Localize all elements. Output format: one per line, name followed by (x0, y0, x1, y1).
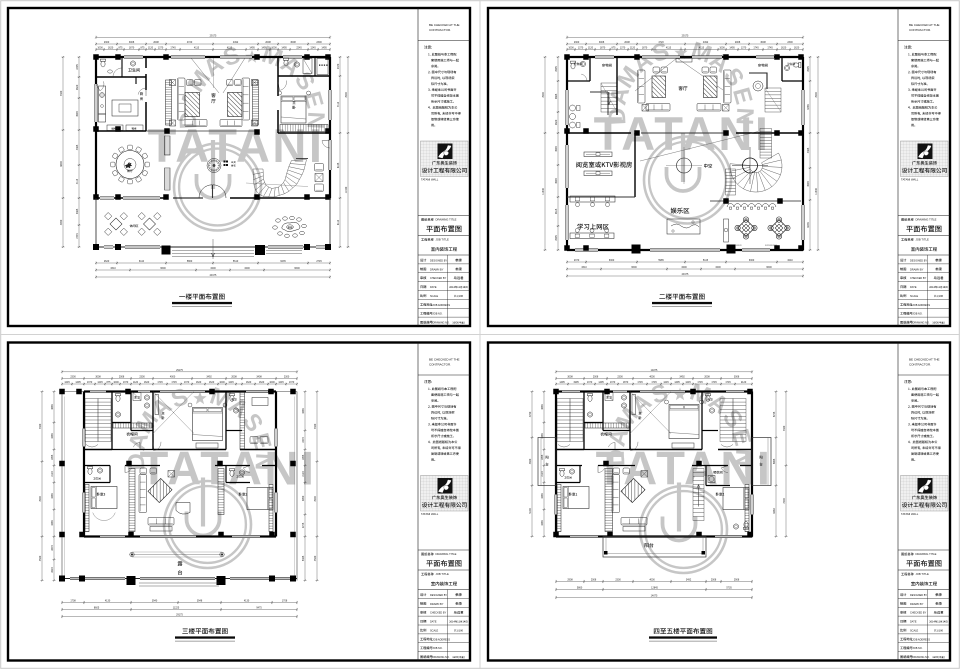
svg-text:1620: 1620 (196, 381, 202, 384)
svg-text:2370: 2370 (337, 63, 340, 69)
svg-text:DATE: DATE (430, 621, 437, 624)
svg-text:7600: 7600 (39, 496, 42, 502)
svg-text:DRAWN BY: DRAWN BY (430, 268, 444, 271)
svg-text:7600: 7600 (815, 92, 818, 98)
svg-text:JOB ADDRESS: JOB ADDRESS (913, 304, 931, 307)
svg-text:1620: 1620 (259, 381, 265, 384)
svg-text:6360: 6360 (609, 259, 615, 262)
svg-text:1495: 1495 (281, 47, 287, 50)
svg-text:3400: 3400 (210, 267, 216, 270)
svg-text:6235: 6235 (280, 260, 286, 263)
svg-text:7300: 7300 (39, 423, 42, 429)
svg-text:1745: 1745 (157, 381, 163, 384)
svg-text:5735: 5735 (773, 411, 776, 417)
svg-text:1995: 1995 (302, 454, 305, 460)
svg-text:DRAWING NO.: DRAWING NO. (913, 322, 930, 325)
svg-text:1000: 1000 (568, 47, 574, 50)
svg-text:14075: 14075 (651, 369, 658, 372)
svg-text:1995: 1995 (573, 381, 579, 384)
svg-text:DESIGNED BY: DESIGNED BY (430, 259, 447, 262)
svg-text:CONTRACTOR.: CONTRACTOR. (909, 28, 931, 32)
svg-text:6600: 6600 (631, 266, 637, 269)
svg-text:SCALE: SCALE (910, 629, 919, 632)
svg-text:1370: 1370 (184, 381, 190, 384)
svg-text:1245: 1245 (310, 47, 316, 50)
svg-text:1745: 1745 (697, 381, 703, 384)
svg-text:2300: 2300 (316, 41, 322, 44)
svg-text:2370: 2370 (302, 437, 305, 443)
svg-text:6360: 6360 (773, 508, 776, 514)
svg-text:DESIGNED BY: DESIGNED BY (910, 594, 927, 597)
svg-text:4720: 4720 (658, 41, 664, 44)
svg-text:2008: 2008 (711, 579, 717, 582)
svg-text:DRAWING NO.: DRAWING NO. (433, 656, 450, 659)
svg-text:3240: 3240 (787, 259, 793, 262)
svg-text:4130: 4130 (244, 600, 250, 603)
svg-text:5985: 5985 (773, 458, 776, 464)
svg-text:5860: 5860 (187, 260, 193, 263)
svg-text:CHECKED BY: CHECKED BY (430, 277, 447, 280)
svg-text:4365: 4365 (76, 144, 79, 150)
svg-text:3365: 3365 (541, 520, 544, 526)
svg-text:5100: 5100 (529, 508, 532, 514)
svg-text:4700: 4700 (529, 411, 532, 417)
svg-text:1370: 1370 (587, 381, 593, 384)
svg-text:1370: 1370 (158, 47, 164, 50)
svg-text:3365: 3365 (51, 520, 54, 526)
svg-text:2370: 2370 (574, 259, 580, 262)
svg-text:1370: 1370 (578, 47, 584, 50)
svg-text:3365: 3365 (541, 493, 544, 499)
svg-text:1495: 1495 (598, 381, 604, 384)
svg-text:5860: 5860 (577, 587, 583, 590)
svg-text:3365: 3365 (51, 493, 54, 499)
svg-text:2995: 2995 (807, 66, 810, 72)
svg-text:1745: 1745 (170, 47, 176, 50)
svg-text:CONTRACTOR.: CONTRACTOR. (429, 363, 451, 367)
svg-text:2120: 2120 (541, 471, 544, 477)
svg-text:DRAWING TITLE: DRAWING TITLE (916, 218, 937, 222)
svg-text:7600: 7600 (542, 92, 545, 98)
svg-text:CHECKED BY: CHECKED BY (910, 612, 927, 615)
svg-text:2745: 2745 (76, 233, 79, 239)
svg-text:2300: 2300 (615, 579, 621, 582)
svg-text:2300: 2300 (574, 41, 580, 44)
svg-text:JOB NO.: JOB NO. (433, 647, 443, 650)
svg-text:3865: 3865 (541, 404, 544, 410)
svg-text:4500: 4500 (314, 555, 317, 561)
svg-text:1245: 1245 (64, 381, 70, 384)
svg-text:4492: 4492 (703, 41, 709, 44)
svg-text:3310: 3310 (581, 266, 587, 269)
svg-text:3492: 3492 (679, 376, 685, 379)
svg-text:4115: 4115 (194, 47, 200, 50)
svg-text:1495: 1495 (674, 381, 680, 384)
svg-text:CHECKED BY: CHECKED BY (910, 277, 927, 280)
svg-text:5985: 5985 (658, 259, 664, 262)
svg-text:1745: 1745 (651, 381, 657, 384)
svg-text:JOB ADDRESS: JOB ADDRESS (433, 638, 451, 641)
svg-text:CONTRACTOR.: CONTRACTOR. (909, 363, 931, 367)
svg-text:6360: 6360 (749, 259, 755, 262)
svg-text:5610: 5610 (233, 260, 239, 263)
svg-text:7300: 7300 (60, 90, 63, 96)
svg-text:1495: 1495 (559, 381, 565, 384)
svg-text:1620: 1620 (246, 381, 252, 384)
svg-text:2300: 2300 (787, 41, 793, 44)
svg-text:11225: 11225 (173, 607, 180, 610)
svg-text:2300: 2300 (104, 41, 110, 44)
svg-text:DRAWING NO.: DRAWING NO. (433, 322, 450, 325)
svg-text:1745: 1745 (753, 47, 759, 50)
svg-text:1995: 1995 (51, 454, 54, 460)
svg-text:1870: 1870 (623, 381, 629, 384)
svg-text:11500: 11500 (542, 188, 545, 195)
svg-text:1000: 1000 (113, 381, 119, 384)
svg-text:1245: 1245 (97, 381, 103, 384)
svg-text:6110: 6110 (139, 260, 145, 263)
svg-text:3408: 3408 (256, 376, 262, 379)
svg-text:2008: 2008 (265, 41, 271, 44)
svg-text:TATAMI WALL: TATAMI WALL (421, 512, 439, 516)
svg-text:1245: 1245 (228, 381, 234, 384)
svg-text:2245: 2245 (296, 47, 302, 50)
svg-text:1870: 1870 (600, 47, 606, 50)
svg-text:2908: 2908 (734, 579, 740, 582)
svg-text:2120: 2120 (51, 471, 54, 477)
svg-text:1000: 1000 (219, 381, 225, 384)
svg-text:6600: 6600 (294, 267, 300, 270)
svg-text:6110: 6110 (337, 219, 340, 225)
svg-text:875: 875 (107, 381, 112, 384)
svg-text:DRAWN BY: DRAWN BY (910, 603, 924, 606)
svg-text:TATAMI WALL: TATAMI WALL (901, 512, 919, 516)
svg-text:29175: 29175 (176, 369, 183, 372)
svg-text:2995: 2995 (555, 235, 558, 241)
svg-text:7110: 7110 (337, 101, 340, 107)
svg-text:1370: 1370 (610, 381, 616, 384)
svg-text:5485: 5485 (302, 555, 305, 561)
svg-text:TATAMI WALL: TATAMI WALL (421, 178, 439, 182)
svg-text:3310: 3310 (110, 267, 116, 270)
svg-text:1495: 1495 (261, 47, 267, 50)
svg-text:1745: 1745 (767, 47, 773, 50)
svg-text:2300: 2300 (284, 376, 290, 379)
svg-text:SCALE: SCALE (910, 295, 919, 298)
svg-text:1620: 1620 (209, 381, 215, 384)
svg-text:4115: 4115 (76, 178, 79, 184)
svg-text:3008: 3008 (567, 376, 573, 379)
svg-text:29175: 29175 (176, 614, 183, 617)
svg-text:4115: 4115 (227, 47, 233, 50)
svg-text:2620: 2620 (555, 119, 558, 125)
svg-text:JOB NO.: JOB NO. (433, 313, 443, 316)
svg-text:7300: 7300 (783, 425, 786, 431)
svg-text:1370: 1370 (620, 47, 626, 50)
svg-text:1000: 1000 (719, 47, 725, 50)
svg-text:DRAWING TITLE: DRAWING TITLE (916, 552, 937, 556)
svg-text:2120: 2120 (302, 471, 305, 477)
svg-text:3865: 3865 (555, 93, 558, 99)
svg-text:4000: 4000 (649, 376, 655, 379)
svg-text:1370: 1370 (87, 381, 93, 384)
svg-text:JOB ADDRESS: JOB ADDRESS (433, 304, 451, 307)
svg-text:1995: 1995 (541, 454, 544, 460)
svg-text:7300: 7300 (314, 423, 317, 429)
svg-text:4800: 4800 (529, 458, 532, 464)
svg-text:12845: 12845 (651, 587, 658, 590)
svg-text:2008: 2008 (591, 579, 597, 582)
svg-text:3008: 3008 (290, 41, 296, 44)
svg-text:JOB TITLE: JOB TITLE (916, 238, 929, 242)
svg-text:9475: 9475 (256, 607, 262, 610)
svg-text:1000: 1000 (269, 381, 275, 384)
svg-text:DRAWING NO.: DRAWING NO. (913, 656, 930, 659)
svg-text:2745: 2745 (302, 522, 305, 528)
svg-text:11500: 11500 (815, 188, 818, 195)
svg-text:1000: 1000 (271, 47, 277, 50)
svg-text:1495: 1495 (249, 47, 255, 50)
svg-text:2908: 2908 (567, 579, 573, 582)
svg-text:11400: 11400 (345, 186, 348, 193)
svg-text:4365: 4365 (807, 147, 810, 153)
svg-text:DRAWING TITLE: DRAWING TITLE (436, 218, 457, 222)
svg-text:1745: 1745 (171, 381, 177, 384)
svg-text:5735: 5735 (726, 587, 732, 590)
svg-text:4500: 4500 (39, 555, 42, 561)
svg-text:8605: 8605 (94, 607, 100, 610)
svg-text:2300: 2300 (70, 376, 76, 379)
svg-text:1370: 1370 (123, 381, 129, 384)
svg-text:3990: 3990 (807, 181, 810, 187)
svg-text:2008: 2008 (704, 376, 710, 379)
svg-text:DESIGNED BY: DESIGNED BY (430, 594, 447, 597)
svg-text:1495: 1495 (75, 381, 81, 384)
svg-text:6600: 6600 (766, 266, 772, 269)
svg-text:3400: 3400 (681, 266, 687, 269)
svg-text:DATE: DATE (910, 286, 917, 289)
svg-text:3990: 3990 (76, 111, 79, 117)
svg-text:BE CHECKED AT THE: BE CHECKED AT THE (429, 23, 460, 27)
svg-text:1620: 1620 (794, 47, 800, 50)
svg-text:3865: 3865 (51, 404, 54, 410)
svg-text:3008: 3008 (760, 41, 766, 44)
svg-text:1000: 1000 (97, 47, 103, 50)
svg-text:4000: 4000 (649, 579, 655, 582)
svg-text:BE CHECKED AT THE: BE CHECKED AT THE (909, 23, 940, 27)
svg-text:1620: 1620 (781, 47, 787, 50)
svg-text:6235: 6235 (807, 222, 810, 228)
svg-text:3990: 3990 (302, 495, 305, 501)
svg-text:2745: 2745 (316, 260, 322, 263)
svg-text:4115: 4115 (699, 47, 705, 50)
svg-text:1708: 1708 (70, 600, 76, 603)
svg-text:3615: 3615 (555, 208, 558, 214)
svg-text:1620: 1620 (108, 47, 114, 50)
svg-text:4900: 4900 (60, 219, 63, 225)
svg-text:3008: 3008 (95, 376, 101, 379)
svg-text:8105: 8105 (337, 162, 340, 168)
svg-text:6485: 6485 (807, 104, 810, 110)
svg-text:1745: 1745 (725, 381, 731, 384)
svg-text:3008: 3008 (599, 41, 605, 44)
svg-text:2008: 2008 (735, 41, 741, 44)
svg-text:6600: 6600 (160, 267, 166, 270)
svg-text:29175: 29175 (210, 35, 217, 38)
svg-text:JOB TITLE: JOB TITLE (436, 238, 449, 242)
svg-text:DATE: DATE (910, 621, 917, 624)
svg-text:1745: 1745 (637, 381, 643, 384)
svg-text:BE CHECKED AT THE: BE CHECKED AT THE (909, 358, 940, 362)
svg-text:2620: 2620 (76, 84, 79, 90)
svg-text:1120: 1120 (588, 47, 594, 50)
svg-text:SCALE: SCALE (430, 629, 439, 632)
svg-text:3008: 3008 (734, 376, 740, 379)
svg-text:1120: 1120 (133, 381, 139, 384)
svg-text:7600: 7600 (314, 496, 317, 502)
svg-text:1245: 1245 (278, 381, 284, 384)
svg-text:4492: 4492 (233, 41, 239, 44)
svg-text:14075: 14075 (651, 595, 658, 598)
svg-text:2870: 2870 (51, 545, 54, 551)
svg-text:3400: 3400 (244, 267, 250, 270)
svg-text:2120: 2120 (741, 381, 747, 384)
svg-text:4000: 4000 (170, 376, 176, 379)
svg-text:1870: 1870 (129, 47, 135, 50)
svg-text:4865: 4865 (302, 408, 305, 414)
svg-text:7600: 7600 (345, 92, 348, 98)
svg-text:5115: 5115 (703, 259, 709, 262)
svg-text:DATE: DATE (430, 286, 437, 289)
svg-text:2008: 2008 (119, 376, 125, 379)
svg-text:CHECKED BY: CHECKED BY (430, 612, 447, 615)
svg-text:3990: 3990 (555, 146, 558, 152)
svg-text:29175: 29175 (210, 274, 217, 277)
svg-text:29175: 29175 (682, 35, 689, 38)
svg-text:DRAWN BY: DRAWN BY (910, 268, 924, 271)
svg-text:2620: 2620 (104, 260, 110, 263)
svg-text:875: 875 (141, 47, 146, 50)
svg-text:1870: 1870 (642, 47, 648, 50)
svg-text:2008: 2008 (231, 376, 237, 379)
svg-text:2008: 2008 (624, 41, 630, 44)
svg-text:2300: 2300 (617, 376, 623, 379)
svg-text:2620: 2620 (51, 567, 54, 573)
svg-text:JOB NO.: JOB NO. (913, 647, 923, 650)
svg-text:2008: 2008 (593, 376, 599, 379)
svg-text:JOB TITLE: JOB TITLE (436, 572, 449, 576)
svg-text:1120: 1120 (148, 47, 154, 50)
svg-text:2300: 2300 (139, 376, 145, 379)
svg-text:SCALE: SCALE (430, 295, 439, 298)
svg-text:3940: 3940 (152, 600, 158, 603)
svg-text:875: 875 (612, 47, 617, 50)
svg-text:1495: 1495 (729, 47, 735, 50)
svg-text:2495: 2495 (76, 64, 79, 70)
svg-text:4115: 4115 (666, 47, 672, 50)
svg-text:1745: 1745 (711, 381, 717, 384)
svg-text:1708: 1708 (282, 600, 288, 603)
svg-text:DESIGNED BY: DESIGNED BY (910, 259, 927, 262)
svg-text:JOB ADDRESS: JOB ADDRESS (913, 638, 931, 641)
svg-text:3400: 3400 (715, 266, 721, 269)
svg-text:2995: 2995 (555, 66, 558, 72)
svg-text:3492: 3492 (686, 579, 692, 582)
svg-text:2008: 2008 (153, 41, 159, 44)
svg-text:1495: 1495 (321, 47, 327, 50)
svg-text:1370: 1370 (741, 47, 747, 50)
svg-text:JOB TITLE: JOB TITLE (916, 572, 929, 576)
svg-text:4720: 4720 (187, 41, 193, 44)
svg-text:3492: 3492 (206, 376, 212, 379)
svg-text:DRAWING TITLE: DRAWING TITLE (436, 552, 457, 556)
svg-text:1120: 1120 (630, 47, 636, 50)
svg-text:3948: 3948 (197, 600, 203, 603)
svg-text:3365: 3365 (51, 433, 54, 439)
svg-text:4130: 4130 (105, 600, 111, 603)
svg-text:BE CHECKED AT THE: BE CHECKED AT THE (429, 358, 460, 362)
svg-text:1245: 1245 (663, 381, 669, 384)
svg-text:29175: 29175 (682, 273, 689, 276)
svg-text:3008: 3008 (129, 41, 135, 44)
svg-text:CONTRACTOR.: CONTRACTOR. (429, 28, 451, 32)
svg-text:3990: 3990 (555, 178, 558, 184)
svg-text:1370: 1370 (289, 381, 295, 384)
svg-text:JOB NO.: JOB NO. (913, 313, 923, 316)
svg-text:3365: 3365 (76, 208, 79, 214)
svg-text:DRAWN BY: DRAWN BY (430, 603, 444, 606)
svg-text:875: 875 (119, 47, 124, 50)
svg-text:7300: 7300 (783, 498, 786, 504)
svg-text:1620: 1620 (144, 381, 150, 384)
svg-text:1245: 1245 (685, 381, 691, 384)
svg-text:TATAMI WALL: TATAMI WALL (901, 178, 919, 182)
svg-text:6800: 6800 (60, 161, 63, 167)
